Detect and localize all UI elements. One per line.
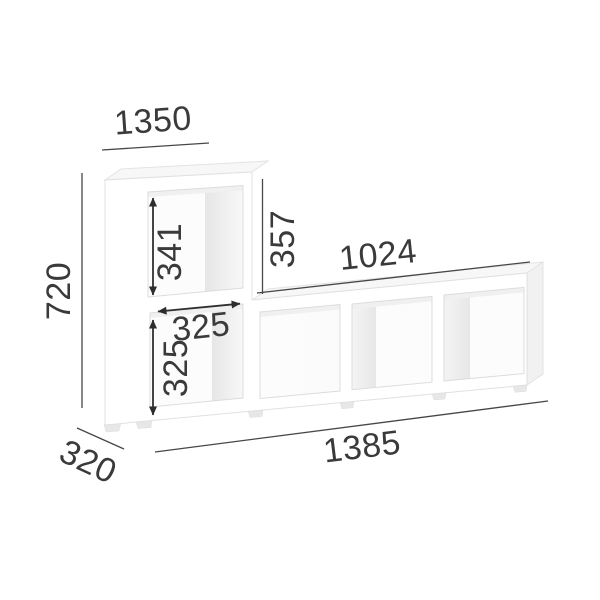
diagram-canvas: 1350 720 320 1385 357 1024 341 325 325 — [0, 0, 600, 600]
dim-label-top-width: 1350 — [113, 99, 193, 142]
furniture-dimension-diagram: 1350 720 320 1385 357 1024 341 325 325 — [0, 0, 600, 600]
dim-line-top-width — [102, 143, 209, 150]
dim-label-row-width: 1024 — [337, 232, 418, 278]
dim-label-lower-cell-height: 325 — [157, 339, 195, 397]
dim-label-upper-section: 357 — [264, 210, 302, 268]
dim-label-overall-height: 720 — [40, 262, 78, 320]
dim-label-depth: 320 — [54, 432, 123, 491]
row-cell-3 — [444, 287, 524, 381]
row-cell-2 — [352, 296, 432, 389]
dim-label-overall-width: 1385 — [321, 423, 403, 470]
row-cell-1 — [260, 305, 340, 399]
dim-label-top-cell-height: 341 — [151, 223, 189, 281]
row-right-side-face — [527, 262, 543, 385]
